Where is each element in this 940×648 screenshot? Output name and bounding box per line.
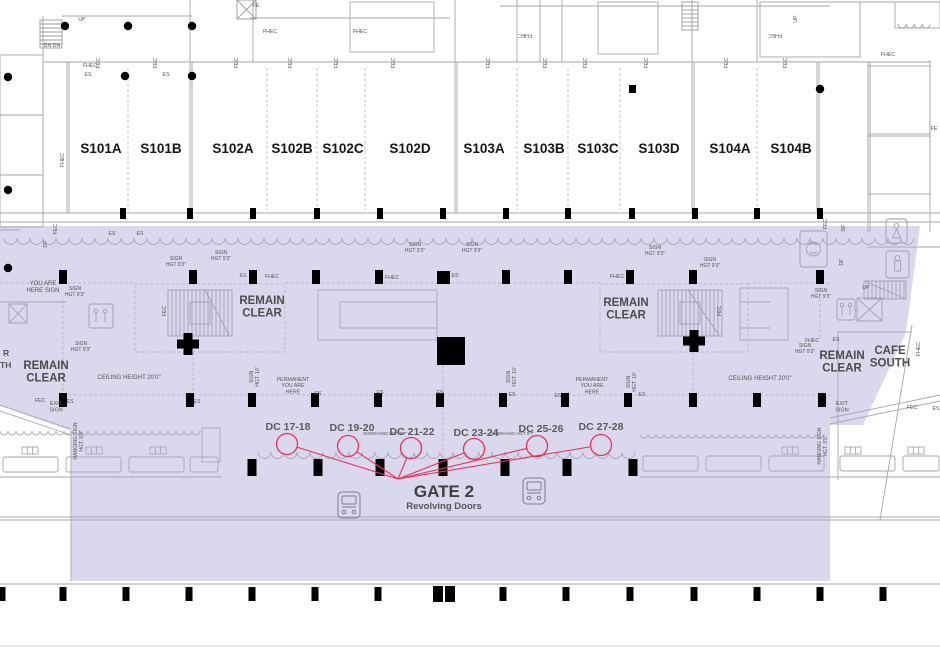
plan-note: R bbox=[3, 348, 9, 358]
wall-arcs bbox=[898, 24, 930, 28]
plan-label: FEC bbox=[288, 58, 294, 69]
hall-label: S102B bbox=[271, 141, 313, 156]
column-square bbox=[692, 208, 698, 219]
plan-label: UP bbox=[862, 285, 870, 291]
column-square bbox=[629, 459, 638, 476]
plan-label: ES bbox=[555, 393, 562, 399]
plan-label: ES bbox=[639, 392, 646, 398]
column-dot bbox=[4, 264, 12, 272]
plan-label: FEC bbox=[783, 58, 789, 69]
column-square bbox=[880, 587, 887, 601]
plan-label: ES bbox=[315, 391, 322, 397]
plan-label: ES bbox=[240, 273, 247, 279]
vestibule bbox=[903, 456, 939, 471]
plan-label: ES bbox=[109, 231, 116, 237]
column-square bbox=[312, 587, 319, 601]
plan-label: FHEC bbox=[768, 32, 782, 38]
plan-label: ES bbox=[509, 392, 516, 398]
column-dot bbox=[121, 72, 129, 80]
vestibule bbox=[840, 456, 895, 471]
door-circle-label: DC 17-18 bbox=[266, 421, 311, 433]
plan-label: FEC bbox=[823, 219, 829, 230]
column-dot bbox=[188, 72, 196, 80]
column-dot bbox=[188, 22, 196, 30]
hall-label: S101A bbox=[80, 141, 122, 156]
column-square bbox=[437, 337, 465, 365]
window-mark bbox=[22, 447, 38, 454]
column-square bbox=[626, 270, 634, 284]
plan-label: DF bbox=[839, 259, 845, 266]
plan-label: FHEC bbox=[385, 275, 399, 281]
column-square bbox=[818, 393, 826, 407]
column-dot bbox=[4, 186, 12, 194]
plan-label: ES bbox=[377, 390, 384, 396]
gate-label: GATE 2 bbox=[414, 482, 474, 501]
plan-label: FEC bbox=[644, 58, 650, 69]
wall-rect bbox=[0, 55, 43, 115]
plan-label: FEC bbox=[334, 58, 340, 69]
plan-label: FEC bbox=[53, 224, 59, 235]
column-square bbox=[249, 270, 257, 284]
column-square bbox=[563, 587, 570, 601]
column-square bbox=[445, 586, 455, 602]
column-dot bbox=[124, 22, 132, 30]
hall-label: S104B bbox=[770, 141, 812, 156]
column-square bbox=[375, 587, 382, 601]
column-square bbox=[816, 270, 824, 284]
column-square bbox=[753, 393, 761, 407]
plan-label: FHEC bbox=[610, 274, 624, 280]
plan-label: ES bbox=[67, 399, 74, 405]
plan-label: ES bbox=[833, 337, 840, 343]
plan-label: FHEC bbox=[916, 342, 922, 356]
plan-label: FHEC bbox=[881, 52, 895, 58]
door-circle-label: DC 21-22 bbox=[390, 426, 435, 438]
plan-label: FE bbox=[931, 126, 938, 132]
hall-label: S102D bbox=[389, 141, 431, 156]
column-square bbox=[189, 270, 197, 284]
hall-label: S102C bbox=[322, 141, 364, 156]
plan-label: FEC bbox=[907, 405, 918, 411]
column-square bbox=[817, 208, 823, 219]
door-circle-label: DC 25-26 bbox=[519, 423, 564, 435]
zone-label: CAFESOUTH bbox=[870, 345, 910, 370]
column-square bbox=[754, 587, 761, 601]
column-dot bbox=[4, 73, 12, 81]
plan-label: DN DN bbox=[44, 43, 61, 49]
hall-label: S103D bbox=[638, 141, 680, 156]
plan-label: FEC bbox=[583, 58, 589, 69]
column-square bbox=[433, 586, 443, 602]
wall-rect bbox=[0, 175, 43, 227]
plan-label: FE bbox=[253, 3, 260, 9]
column-square bbox=[186, 587, 193, 601]
column-square bbox=[503, 208, 509, 219]
column-square bbox=[312, 270, 320, 284]
column-square bbox=[250, 208, 256, 219]
plan-label: UP bbox=[793, 15, 799, 23]
plan-note: YOU AREHERE SIGN bbox=[26, 281, 59, 294]
plan-label: ES bbox=[437, 390, 444, 396]
column-cross bbox=[690, 330, 699, 352]
plan-label: DF bbox=[841, 225, 847, 232]
column-square bbox=[565, 208, 571, 219]
plan-label: FHEC bbox=[805, 338, 819, 344]
vestibule bbox=[3, 457, 58, 472]
plan-label: FHEC bbox=[353, 29, 367, 35]
floor-plan-drawing: S101AS101BS102AS102BS102CS102DS103AS103B… bbox=[0, 0, 940, 648]
plan-label: FEC bbox=[96, 58, 102, 69]
window-mark bbox=[845, 447, 861, 454]
wall-rect bbox=[868, 66, 930, 134]
gate-subtitle: Revolving Doors bbox=[406, 501, 482, 512]
column-square bbox=[627, 587, 634, 601]
column-square bbox=[502, 270, 510, 284]
column-square bbox=[60, 587, 67, 601]
column-square bbox=[248, 393, 256, 407]
door-circle-label: DC 27-28 bbox=[579, 421, 624, 433]
column-square bbox=[689, 270, 697, 284]
column-square bbox=[248, 459, 257, 476]
column-square bbox=[59, 270, 67, 284]
plan-label: FEC bbox=[486, 58, 492, 69]
column-square bbox=[187, 208, 193, 219]
column-square bbox=[500, 587, 507, 601]
hall-label: S103C bbox=[577, 141, 619, 156]
zone-label: REMAINCLEAR bbox=[603, 297, 648, 322]
column-square bbox=[629, 208, 635, 219]
zone-label: REMAINCLEAR bbox=[819, 350, 864, 375]
plan-label: ES bbox=[452, 273, 459, 279]
column-square bbox=[689, 393, 697, 407]
plan-label: ES bbox=[137, 231, 144, 237]
hall-label: S104A bbox=[709, 141, 751, 156]
plan-label: FEC bbox=[35, 398, 46, 404]
column-square bbox=[249, 587, 256, 601]
plan-label: ES bbox=[933, 406, 940, 412]
wall-rect bbox=[895, 2, 940, 28]
wall-rect bbox=[868, 136, 930, 194]
column-square bbox=[437, 271, 450, 284]
plan-label: FEC bbox=[162, 306, 168, 317]
hall-label: S101B bbox=[140, 141, 182, 156]
column-square bbox=[123, 587, 130, 601]
plan-label: FHEC bbox=[60, 153, 66, 167]
column-square bbox=[314, 208, 320, 219]
wall-rect bbox=[350, 2, 434, 52]
plan-label: FEC bbox=[153, 58, 159, 69]
zone-label: REMAINCLEAR bbox=[239, 295, 284, 320]
column-square bbox=[624, 393, 632, 407]
plan-label: FHEC bbox=[263, 29, 277, 35]
column-square bbox=[440, 208, 446, 219]
column-square bbox=[377, 208, 383, 219]
plan-label: ES bbox=[163, 72, 170, 78]
door-circle-label: DC 23-24 bbox=[454, 427, 499, 439]
plan-note: EXITSIGN bbox=[835, 401, 848, 414]
plan-label: FEC bbox=[391, 58, 397, 69]
plan-label: FEC bbox=[717, 306, 723, 317]
concourse-highlight-overlay bbox=[0, 226, 920, 581]
plan-label: UP bbox=[78, 17, 86, 23]
column-square bbox=[691, 587, 698, 601]
column-square bbox=[120, 208, 126, 219]
plan-note: CEILING HEIGHT 20'0" bbox=[97, 375, 160, 381]
column-square bbox=[564, 270, 572, 284]
column-square bbox=[817, 587, 824, 601]
plan-note: CEILING HEIGHT 20'0" bbox=[728, 376, 791, 382]
column-square bbox=[0, 587, 6, 601]
wall-rect bbox=[760, 2, 860, 57]
plan-note: TH bbox=[0, 360, 11, 370]
zone-label: REMAINCLEAR bbox=[23, 360, 68, 385]
plan-label: ES bbox=[85, 72, 92, 78]
column-square bbox=[629, 85, 636, 93]
plan-label: ES bbox=[194, 399, 201, 405]
window-mark bbox=[908, 447, 924, 454]
plan-label: FEC bbox=[724, 58, 730, 69]
hall-label: S103B bbox=[523, 141, 565, 156]
plan-label: FEC bbox=[543, 58, 549, 69]
plan-note: EXITSIGN bbox=[49, 401, 62, 414]
column-square bbox=[754, 208, 760, 219]
column-cross bbox=[184, 333, 193, 355]
column-dot bbox=[61, 22, 69, 30]
door-circle-label: DC 19-20 bbox=[330, 422, 375, 434]
hall-label: S103A bbox=[463, 141, 505, 156]
wall-rect bbox=[598, 2, 658, 54]
gate-annotation: GATE 2 Revolving Doors bbox=[406, 482, 482, 512]
plan-label: FHEC bbox=[518, 32, 532, 38]
column-square bbox=[499, 393, 507, 407]
wall-rect bbox=[0, 115, 43, 175]
column-square bbox=[563, 459, 572, 476]
hall-label: S102A bbox=[212, 141, 254, 156]
plan-label: DF bbox=[43, 241, 49, 248]
plan-label: FEC bbox=[234, 58, 240, 69]
floor-plan: S101AS101BS102AS102BS102CS102DS103AS103B… bbox=[0, 0, 940, 648]
column-square bbox=[375, 270, 383, 284]
column-square bbox=[314, 459, 323, 476]
plan-label: FHEC bbox=[265, 274, 279, 280]
column-dot bbox=[816, 85, 824, 93]
column-square bbox=[561, 393, 569, 407]
